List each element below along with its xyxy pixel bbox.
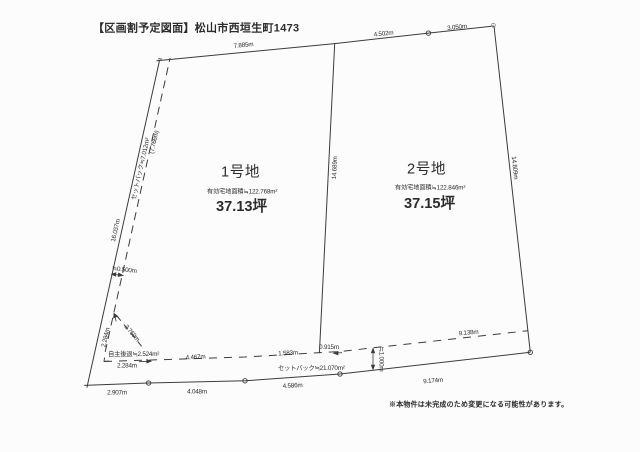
svg-text:自主後退≒2.524m²: 自主後退≒2.524m² — [108, 349, 159, 358]
svg-text:4.467m: 4.467m — [185, 353, 205, 361]
svg-text:14.809m: 14.809m — [510, 156, 519, 180]
svg-text:4.586m: 4.586m — [283, 382, 303, 390]
svg-text:2.284m: 2.284m — [100, 327, 111, 348]
svg-text:3.769m: 3.769m — [122, 324, 140, 344]
svg-text:1号地: 1号地 — [221, 164, 260, 181]
svg-text:37.13坪: 37.13坪 — [216, 198, 268, 215]
svg-text:9.138m: 9.138m — [458, 329, 478, 338]
svg-text:セットバック≒21.070m²: セットバック≒21.070m² — [278, 364, 345, 372]
svg-text:2.284m: 2.284m — [117, 363, 137, 370]
svg-text:9.174m: 9.174m — [423, 377, 443, 386]
svg-text:1.583m: 1.583m — [278, 349, 298, 357]
svg-text:【区画割予定図面】松山市西垣生町1473: 【区画割予定図面】松山市西垣生町1473 — [93, 21, 299, 35]
svg-text:14.689m: 14.689m — [331, 156, 339, 179]
svg-text:3.050m: 3.050m — [447, 23, 467, 32]
svg-text:37.15坪: 37.15坪 — [404, 195, 456, 212]
svg-text:2号地: 2号地 — [407, 161, 446, 178]
svg-text:≒1.000m: ≒1.000m — [378, 347, 385, 372]
svg-text:7.885m: 7.885m — [233, 41, 253, 50]
svg-text:(7.766m): (7.766m) — [148, 130, 160, 155]
svg-text:4.048m: 4.048m — [187, 389, 207, 396]
svg-text:※本物件は未完成のため変更になる可能性があります。: ※本物件は未完成のため変更になる可能性があります。 — [389, 400, 568, 409]
svg-text:有効宅地面積≒122.768m²: 有効宅地面積≒122.768m² — [207, 188, 277, 196]
svg-text:2.907m: 2.907m — [107, 390, 127, 397]
svg-text:有効宅地面積≒122.846m²: 有効宅地面積≒122.846m² — [395, 184, 465, 192]
svg-text:0.915m: 0.915m — [319, 344, 339, 351]
